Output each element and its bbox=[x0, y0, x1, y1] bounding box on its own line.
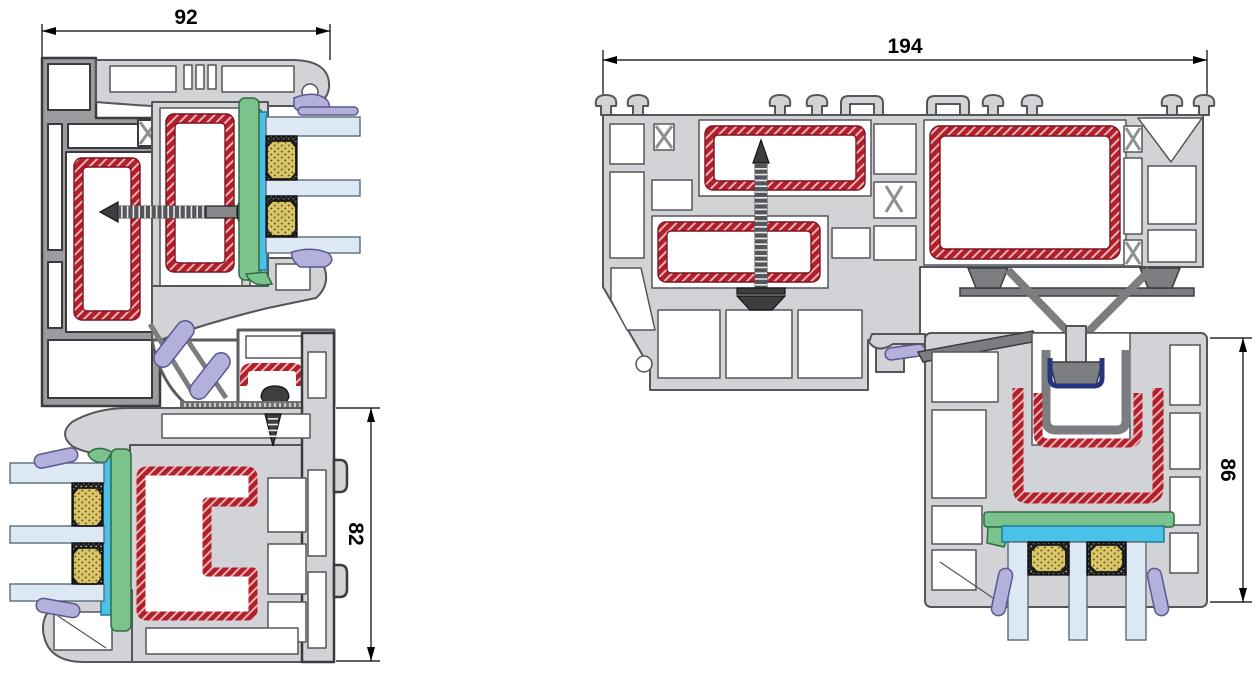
glazing-tape bbox=[1002, 526, 1164, 542]
glazing-unit-upper bbox=[239, 94, 360, 285]
seal-gasket bbox=[292, 249, 332, 267]
glass-pane bbox=[10, 463, 104, 483]
spacer-core bbox=[73, 548, 102, 584]
dimension-label-width-right: 194 bbox=[887, 35, 922, 58]
dimension-arrow bbox=[42, 27, 56, 35]
glass-pane bbox=[1069, 542, 1087, 640]
dimension-label-height-right: 86 bbox=[1216, 458, 1239, 481]
dimension-width-left: 92 bbox=[42, 6, 330, 60]
dimension-arrow bbox=[367, 408, 375, 422]
dimension-arrow bbox=[603, 56, 617, 64]
dimension-width-right: 194 bbox=[603, 35, 1207, 112]
glazing-gasket bbox=[239, 98, 259, 280]
clip-tab bbox=[334, 460, 347, 492]
clip-tab bbox=[334, 565, 347, 597]
glass-pane bbox=[266, 180, 360, 196]
spacer-core bbox=[1090, 545, 1123, 572]
dimension-label-width-left: 92 bbox=[174, 6, 197, 29]
bracket-stem bbox=[1066, 326, 1086, 364]
outer-frame-profile-upper bbox=[42, 58, 160, 406]
dimension-arrow bbox=[367, 647, 375, 661]
coupling-bracket bbox=[960, 268, 1194, 334]
right-section-drawing: 194 bbox=[596, 35, 1252, 640]
left-section-drawing: 92 bbox=[10, 6, 380, 662]
bracket-foot bbox=[1050, 362, 1102, 386]
glazing-gasket bbox=[984, 512, 1174, 527]
technical-drawing-canvas: 92 bbox=[0, 0, 1257, 675]
seal-gasket bbox=[298, 107, 358, 115]
glass-pane bbox=[266, 117, 360, 136]
dimension-label-height-left: 82 bbox=[344, 522, 367, 545]
spacer-core bbox=[267, 141, 296, 179]
spacer-core bbox=[73, 488, 102, 526]
dimension-arrow bbox=[1239, 338, 1247, 352]
dimension-arrow bbox=[1239, 588, 1247, 602]
glazing-unit-right bbox=[984, 512, 1174, 640]
spacer-core bbox=[1031, 545, 1066, 572]
glass-pane bbox=[10, 526, 104, 543]
spacer-core bbox=[267, 201, 296, 236]
profile-teeth bbox=[596, 95, 1215, 115]
dimension-height-left: 82 bbox=[336, 408, 380, 661]
drawing-page: 92 bbox=[0, 0, 1257, 675]
glass-pane bbox=[1126, 542, 1146, 640]
glazing-unit-lower bbox=[10, 447, 131, 631]
dimension-arrow bbox=[316, 27, 330, 35]
glazing-gasket bbox=[111, 449, 131, 631]
dimension-arrow bbox=[1193, 56, 1207, 64]
dimension-height-right: 86 bbox=[1210, 338, 1252, 602]
glass-pane bbox=[10, 584, 104, 601]
glass-pane bbox=[1008, 542, 1028, 640]
